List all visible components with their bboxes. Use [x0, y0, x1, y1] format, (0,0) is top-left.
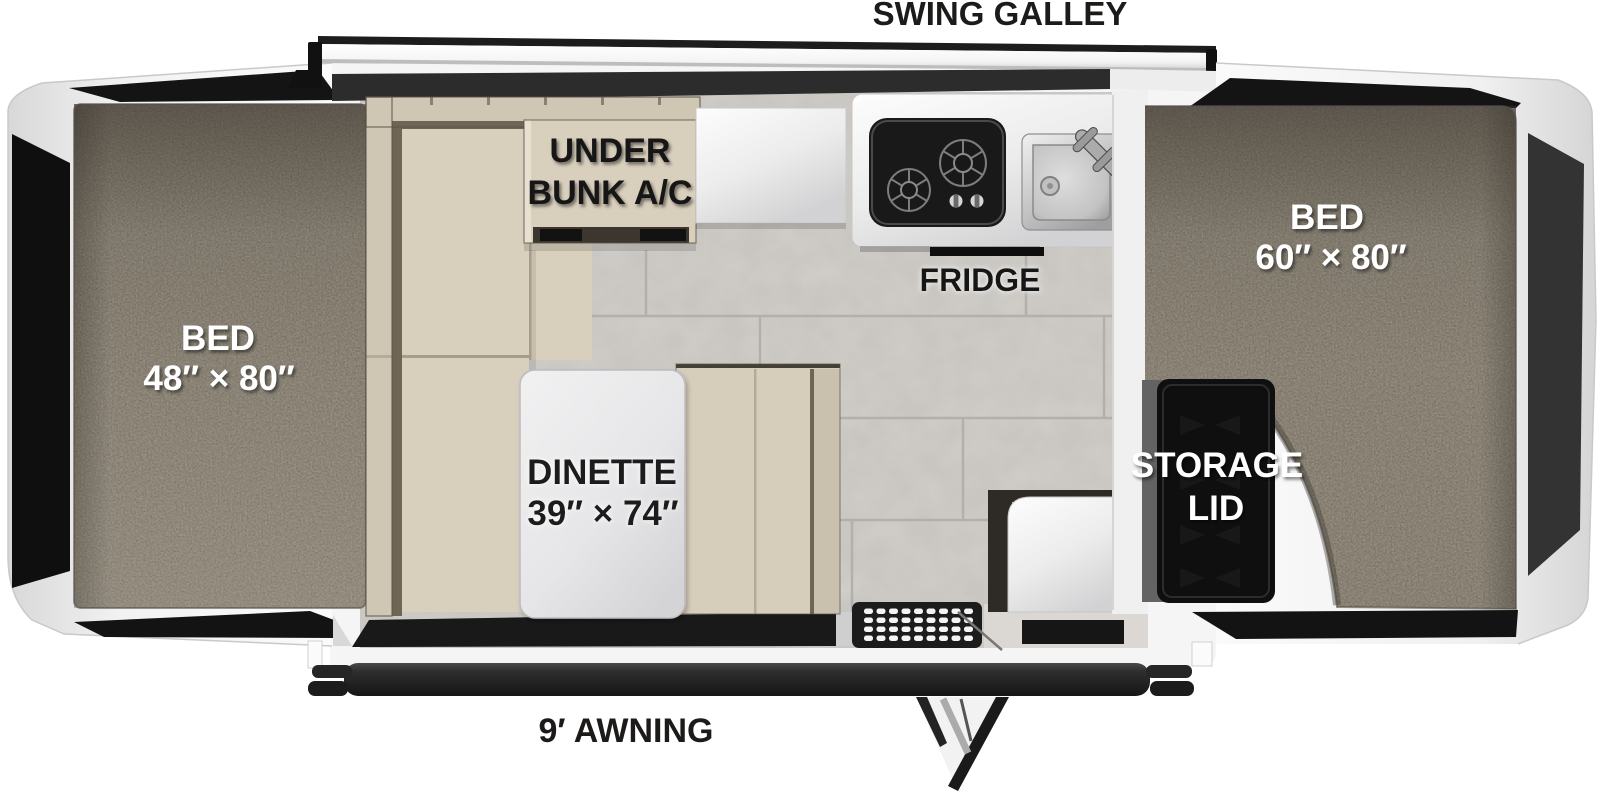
svg-text:39″ × 74″: 39″ × 74″	[527, 494, 679, 533]
svg-text:DINETTE: DINETTE	[527, 453, 677, 492]
svg-text:48″ × 80″: 48″ × 80″	[143, 359, 295, 398]
svg-text:BED: BED	[181, 319, 255, 358]
svg-text:BED: BED	[1290, 198, 1364, 237]
svg-text:BUNK A/C: BUNK A/C	[528, 174, 693, 212]
svg-text:60″ × 80″: 60″ × 80″	[1255, 238, 1407, 277]
svg-text:9′ AWNING: 9′ AWNING	[538, 712, 713, 750]
svg-text:UNDER: UNDER	[550, 132, 671, 170]
svg-text:LID: LID	[1188, 489, 1244, 528]
svg-text:SWING GALLEY: SWING GALLEY	[873, 0, 1128, 32]
svg-text:STORAGE: STORAGE	[1131, 446, 1303, 485]
svg-text:FRIDGE: FRIDGE	[920, 262, 1041, 298]
